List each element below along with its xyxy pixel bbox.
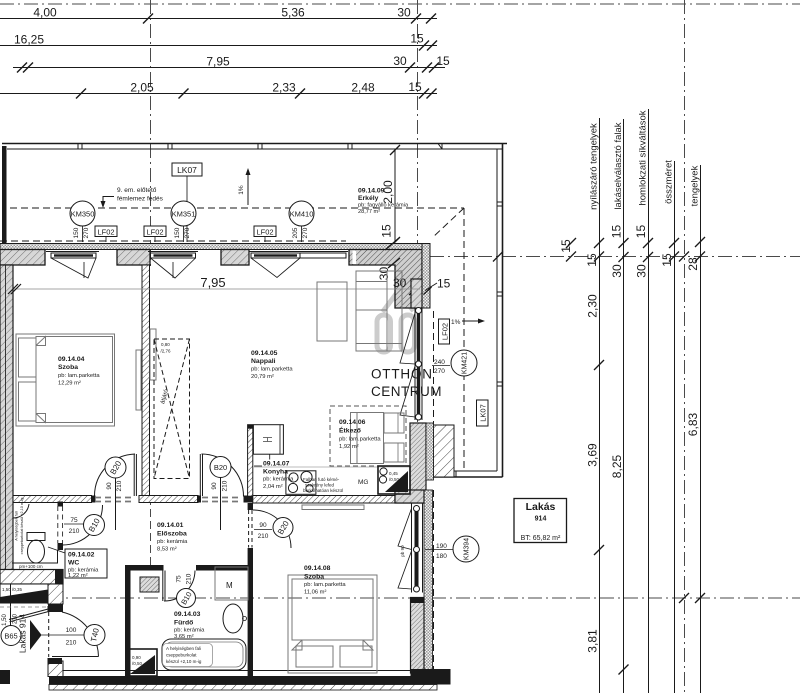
svg-text:1,50: 1,50 xyxy=(2,614,8,626)
svg-text:28: 28 xyxy=(686,257,700,271)
svg-text:75: 75 xyxy=(70,517,78,524)
svg-text:cseppeburkolat: cseppeburkolat xyxy=(166,653,197,658)
svg-text:75: 75 xyxy=(176,575,183,583)
svg-text:pb: lam.parketta: pb: lam.parketta xyxy=(304,582,346,588)
svg-text:15: 15 xyxy=(610,225,624,239)
svg-text:Lakás 914: Lakás 914 xyxy=(18,614,28,653)
svg-text:30: 30 xyxy=(610,264,624,278)
svg-text:09.14.07: 09.14.07 xyxy=(263,461,290,468)
svg-text:30: 30 xyxy=(635,264,649,278)
svg-text:Falban futó kémé-: Falban futó kémé- xyxy=(303,477,340,482)
svg-text:11,06 m²: 11,06 m² xyxy=(304,590,327,596)
svg-text:9. em. előtető: 9. em. előtető xyxy=(117,187,157,194)
svg-text:tengelyek: tengelyek xyxy=(690,165,701,206)
svg-text:A helyiségben fali: A helyiségben fali xyxy=(15,511,19,541)
svg-text:30: 30 xyxy=(393,276,407,290)
svg-text:30: 30 xyxy=(377,267,391,281)
svg-text:2,04 m²: 2,04 m² xyxy=(263,484,283,490)
svg-text:KM351: KM351 xyxy=(172,210,196,219)
svg-text:KM350: KM350 xyxy=(71,210,95,219)
svg-text:M: M xyxy=(226,581,233,590)
svg-text:WC: WC xyxy=(68,560,79,567)
svg-text:3,65 m²: 3,65 m² xyxy=(174,634,194,640)
svg-text:cseppeburkolat készül +2,10 m-: cseppeburkolat készül +2,10 m-ig xyxy=(20,498,24,555)
svg-text:15: 15 xyxy=(634,225,648,239)
svg-text:készül +2,10 m-ig: készül +2,10 m-ig xyxy=(166,659,202,664)
svg-text:KM421: KM421 xyxy=(462,352,469,374)
svg-text:4,00: 4,00 xyxy=(33,6,57,20)
svg-text:pb: kerámia: pb: kerámia xyxy=(157,539,188,545)
svg-text:CENTRUM: CENTRUM xyxy=(371,384,442,399)
svg-text:6,83: 6,83 xyxy=(686,412,700,436)
svg-text:pm+100 cm: pm+100 cm xyxy=(19,564,43,569)
svg-text:pb 90: pb 90 xyxy=(400,545,405,557)
svg-text:15: 15 xyxy=(410,32,424,46)
svg-text:0,90: 0,90 xyxy=(132,655,141,660)
svg-text:210: 210 xyxy=(66,640,77,647)
svg-text:15: 15 xyxy=(585,253,599,267)
svg-text:270: 270 xyxy=(302,227,309,238)
svg-text:210: 210 xyxy=(186,573,193,584)
svg-text:Lakás: Lakás xyxy=(526,501,556,513)
svg-text:15: 15 xyxy=(380,224,394,238)
svg-text:KM394: KM394 xyxy=(464,538,471,560)
svg-text:B65: B65 xyxy=(4,632,17,641)
svg-text:Szoba: Szoba xyxy=(304,574,324,581)
svg-text:1,92 m²: 1,92 m² xyxy=(339,444,359,450)
svg-text:914: 914 xyxy=(535,516,547,523)
svg-text:/0,50: /0,50 xyxy=(389,477,400,482)
svg-text:15: 15 xyxy=(437,277,451,291)
svg-text:Előszoba: Előszoba xyxy=(157,531,187,538)
svg-text:LF02: LF02 xyxy=(256,228,273,237)
svg-text:2,30: 2,30 xyxy=(586,294,600,318)
svg-text:240: 240 xyxy=(434,359,445,366)
svg-text:180: 180 xyxy=(436,553,447,560)
svg-text:2,05: 2,05 xyxy=(130,81,154,95)
svg-text:210: 210 xyxy=(116,480,123,491)
svg-text:210: 210 xyxy=(258,533,269,540)
svg-text:30: 30 xyxy=(393,54,407,68)
svg-text:OTTHON: OTTHON xyxy=(371,367,433,382)
svg-text:pb: lam.parketta: pb: lam.parketta xyxy=(339,437,381,443)
svg-text:BT: 65,82 m²: BT: 65,82 m² xyxy=(521,535,561,542)
svg-text:09.14.03: 09.14.03 xyxy=(174,611,201,618)
svg-text:3,69: 3,69 xyxy=(586,443,600,467)
svg-text:3,81: 3,81 xyxy=(586,629,600,653)
svg-text:150: 150 xyxy=(73,227,80,238)
svg-text:7,95: 7,95 xyxy=(206,55,230,69)
svg-text:09.14.08: 09.14.08 xyxy=(304,565,331,572)
svg-text:190: 190 xyxy=(436,543,447,550)
svg-text:15: 15 xyxy=(436,54,450,68)
svg-text:09.14.05: 09.14.05 xyxy=(251,350,278,357)
svg-text:0,45: 0,45 xyxy=(389,471,398,476)
svg-text:210: 210 xyxy=(222,480,229,491)
svg-text:B20: B20 xyxy=(214,463,227,472)
svg-text:5,36: 5,36 xyxy=(281,6,305,20)
svg-text:210: 210 xyxy=(13,613,19,624)
svg-text:16,25: 16,25 xyxy=(14,33,44,47)
svg-text:09.14.02: 09.14.02 xyxy=(68,552,95,559)
svg-text:90: 90 xyxy=(259,522,267,529)
svg-text:pb: kerámia: pb: kerámia xyxy=(263,477,294,483)
svg-text:90: 90 xyxy=(106,482,113,490)
svg-text:100: 100 xyxy=(66,627,77,634)
svg-text:LK07: LK07 xyxy=(177,165,197,175)
svg-text:1,22 m²: 1,22 m² xyxy=(68,573,88,579)
svg-text:pb: lam.parketta: pb: lam.parketta xyxy=(251,367,293,373)
svg-text:nyílászáró tengelyek: nyílászáró tengelyek xyxy=(589,123,600,210)
svg-text:pb: lam.parketta: pb: lam.parketta xyxy=(58,373,100,379)
svg-text:20,79 m²: 20,79 m² xyxy=(251,374,274,380)
svg-text:LF02: LF02 xyxy=(441,323,450,340)
svg-text:összméret: összméret xyxy=(664,160,675,204)
svg-text:fémlemez fedés: fémlemez fedés xyxy=(117,196,164,203)
svg-text:LK07: LK07 xyxy=(479,404,488,422)
svg-text:Étkező: Étkező xyxy=(339,426,361,435)
svg-text:8,53 m²: 8,53 m² xyxy=(157,547,177,553)
svg-text:15: 15 xyxy=(559,239,573,253)
svg-text:09.14.04: 09.14.04 xyxy=(58,356,85,363)
svg-text:2,00: 2,00 xyxy=(381,180,395,204)
svg-text:7,95: 7,95 xyxy=(200,275,225,290)
svg-text:8,25: 8,25 xyxy=(610,454,624,478)
svg-text:Erkély: Erkély xyxy=(358,195,379,202)
svg-text:lakáselválasztó falak: lakáselválasztó falak xyxy=(613,122,624,209)
svg-text:burkolhatóan készül: burkolhatóan készül xyxy=(303,488,343,493)
svg-text:Konyha: Konyha xyxy=(263,469,288,476)
svg-text:LF02: LF02 xyxy=(146,228,163,237)
svg-text:30: 30 xyxy=(397,6,411,20)
svg-text:12,29 m²: 12,29 m² xyxy=(58,381,81,387)
svg-text:0,80: 0,80 xyxy=(161,342,170,347)
svg-text:205: 205 xyxy=(292,227,299,238)
svg-text:KM410: KM410 xyxy=(290,210,314,219)
svg-text:1%: 1% xyxy=(451,319,461,326)
svg-text:1,50 /0,35: 1,50 /0,35 xyxy=(2,587,23,592)
svg-text:/2,76: /2,76 xyxy=(161,349,172,354)
svg-text:szekrény lefed: szekrény lefed xyxy=(305,483,335,488)
svg-text:homlokzati síkváltások: homlokzati síkváltások xyxy=(638,110,649,205)
svg-text:/0,50: /0,50 xyxy=(132,661,143,666)
svg-text:Nappali: Nappali xyxy=(251,358,276,365)
svg-text:270: 270 xyxy=(83,227,90,238)
svg-text:Fürdő: Fürdő xyxy=(174,620,193,627)
svg-text:270: 270 xyxy=(184,227,191,238)
svg-text:09.14.06: 09.14.06 xyxy=(339,419,366,426)
svg-text:210: 210 xyxy=(69,528,80,535)
svg-text:Szoba: Szoba xyxy=(58,364,78,371)
svg-text:2,48: 2,48 xyxy=(351,81,375,95)
svg-text:90: 90 xyxy=(211,482,218,490)
svg-text:pb: kerámia: pb: kerámia xyxy=(174,628,205,634)
svg-text:15: 15 xyxy=(408,80,422,94)
svg-text:LF02: LF02 xyxy=(97,228,114,237)
svg-text:28,77 m²: 28,77 m² xyxy=(358,209,380,215)
svg-text:2,33: 2,33 xyxy=(272,81,296,95)
svg-text:15: 15 xyxy=(660,253,674,267)
svg-text:MG: MG xyxy=(358,479,368,486)
svg-text:270: 270 xyxy=(434,368,445,375)
svg-text:150: 150 xyxy=(174,227,181,238)
svg-text:A helyiségben fali: A helyiségben fali xyxy=(166,646,201,651)
svg-text:1%: 1% xyxy=(238,185,245,195)
svg-text:09.14.01: 09.14.01 xyxy=(157,522,184,529)
